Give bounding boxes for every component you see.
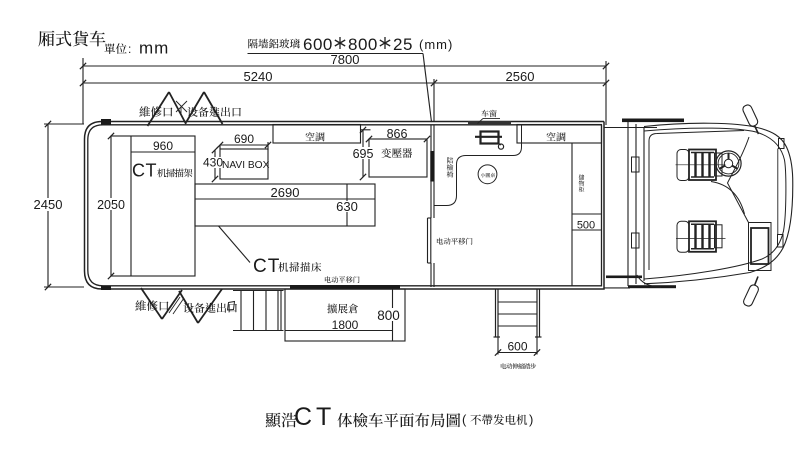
- svg-text:CT: CT: [132, 161, 157, 181]
- svg-text:5240: 5240: [244, 69, 273, 84]
- svg-text:(mm): (mm): [419, 37, 453, 52]
- svg-text:25: 25: [393, 35, 413, 54]
- svg-text:CT: CT: [253, 256, 280, 277]
- svg-text:2450: 2450: [34, 197, 63, 212]
- svg-text:(: (: [462, 412, 467, 427]
- svg-text:695: 695: [353, 147, 374, 161]
- svg-text:600: 600: [507, 340, 527, 354]
- svg-text::: :: [298, 39, 301, 51]
- svg-text:2560: 2560: [506, 69, 535, 84]
- svg-text:2690: 2690: [271, 185, 300, 200]
- svg-text:NAVI BOX: NAVI BOX: [222, 160, 270, 171]
- svg-text:mm: mm: [139, 39, 169, 58]
- svg-text:600: 600: [303, 35, 333, 54]
- svg-text:690: 690: [234, 132, 254, 146]
- svg-text::: :: [128, 42, 131, 56]
- svg-text:2050: 2050: [97, 198, 125, 212]
- svg-text:7800: 7800: [331, 52, 360, 67]
- svg-text:CT: CT: [294, 403, 335, 431]
- svg-text:): ): [529, 412, 533, 427]
- svg-text:800: 800: [377, 308, 400, 323]
- svg-text:630: 630: [336, 199, 358, 214]
- svg-text:1800: 1800: [332, 318, 359, 332]
- svg-text:500: 500: [577, 220, 595, 232]
- svg-text:960: 960: [153, 139, 173, 153]
- svg-text:430: 430: [203, 156, 223, 170]
